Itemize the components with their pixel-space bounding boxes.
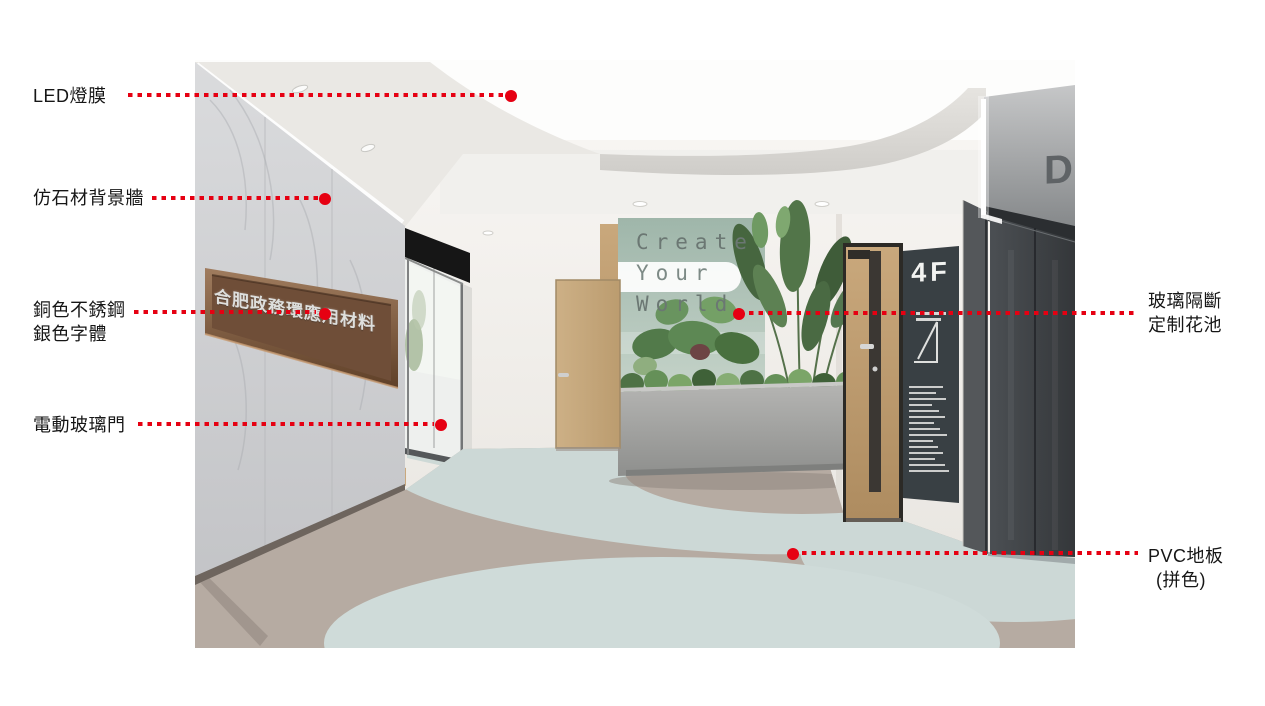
leader-line-glass-door xyxy=(138,422,434,426)
leader-line-pvc xyxy=(802,551,1138,555)
wood-door-right xyxy=(843,243,903,522)
floor-sign-text: 4F xyxy=(903,256,959,289)
callout-pvc-line1: PVC地板 xyxy=(1148,544,1224,568)
callout-pvc-floor: PVC地板 (拼色) xyxy=(1148,544,1224,592)
downlight xyxy=(815,202,829,207)
leader-line-led xyxy=(128,93,504,97)
slogan-line-2: Your xyxy=(636,261,715,285)
slogan-line-3: World xyxy=(636,292,734,316)
leader-line-stone xyxy=(152,196,320,200)
door-lever xyxy=(860,344,874,349)
callout-partition: 玻璃隔斷 定制花池 xyxy=(1148,289,1222,337)
callout-pvc-line2: (拼色) xyxy=(1156,568,1224,592)
leader-dot-glass-door xyxy=(435,419,447,431)
callout-partition-line2: 定制花池 xyxy=(1148,313,1222,337)
callout-glass-door: 電動玻璃門 xyxy=(33,413,126,437)
callout-copper-line2: 銀色字體 xyxy=(33,322,126,346)
led-strip-light xyxy=(981,99,986,215)
leader-dot-pvc xyxy=(787,548,799,560)
door-handle xyxy=(558,373,569,377)
slogan-line-1: Create xyxy=(636,230,754,254)
leader-line-partition xyxy=(749,311,1137,315)
downlight xyxy=(633,202,647,207)
elevator-doors xyxy=(990,216,1075,557)
callout-copper-line1: 銅色不銹鋼 xyxy=(33,298,126,322)
door-closer xyxy=(848,250,870,259)
planter-box xyxy=(618,381,868,476)
callout-copper-sign: 銅色不銹鋼 銀色字體 xyxy=(33,298,126,346)
downlight xyxy=(483,231,493,235)
annotated-lobby-rendering: 合肥政務環應用材料 Create Your World 4F D LED燈膜 仿… xyxy=(0,0,1265,706)
elevator-frame xyxy=(963,200,988,554)
elevator-panel-letter: D xyxy=(1044,147,1073,194)
leader-dot-stone xyxy=(319,193,331,205)
callout-led-film: LED燈膜 xyxy=(33,84,107,108)
callout-partition-line1: 玻璃隔斷 xyxy=(1148,289,1222,313)
leader-dot-led xyxy=(505,90,517,102)
lobby-rendering xyxy=(0,0,1265,706)
callout-stone-wall: 仿石材背景牆 xyxy=(33,186,144,210)
leader-line-copper xyxy=(134,310,316,314)
leader-dot-copper xyxy=(319,308,331,320)
wood-door-center xyxy=(556,280,620,451)
leader-dot-partition xyxy=(733,308,745,320)
